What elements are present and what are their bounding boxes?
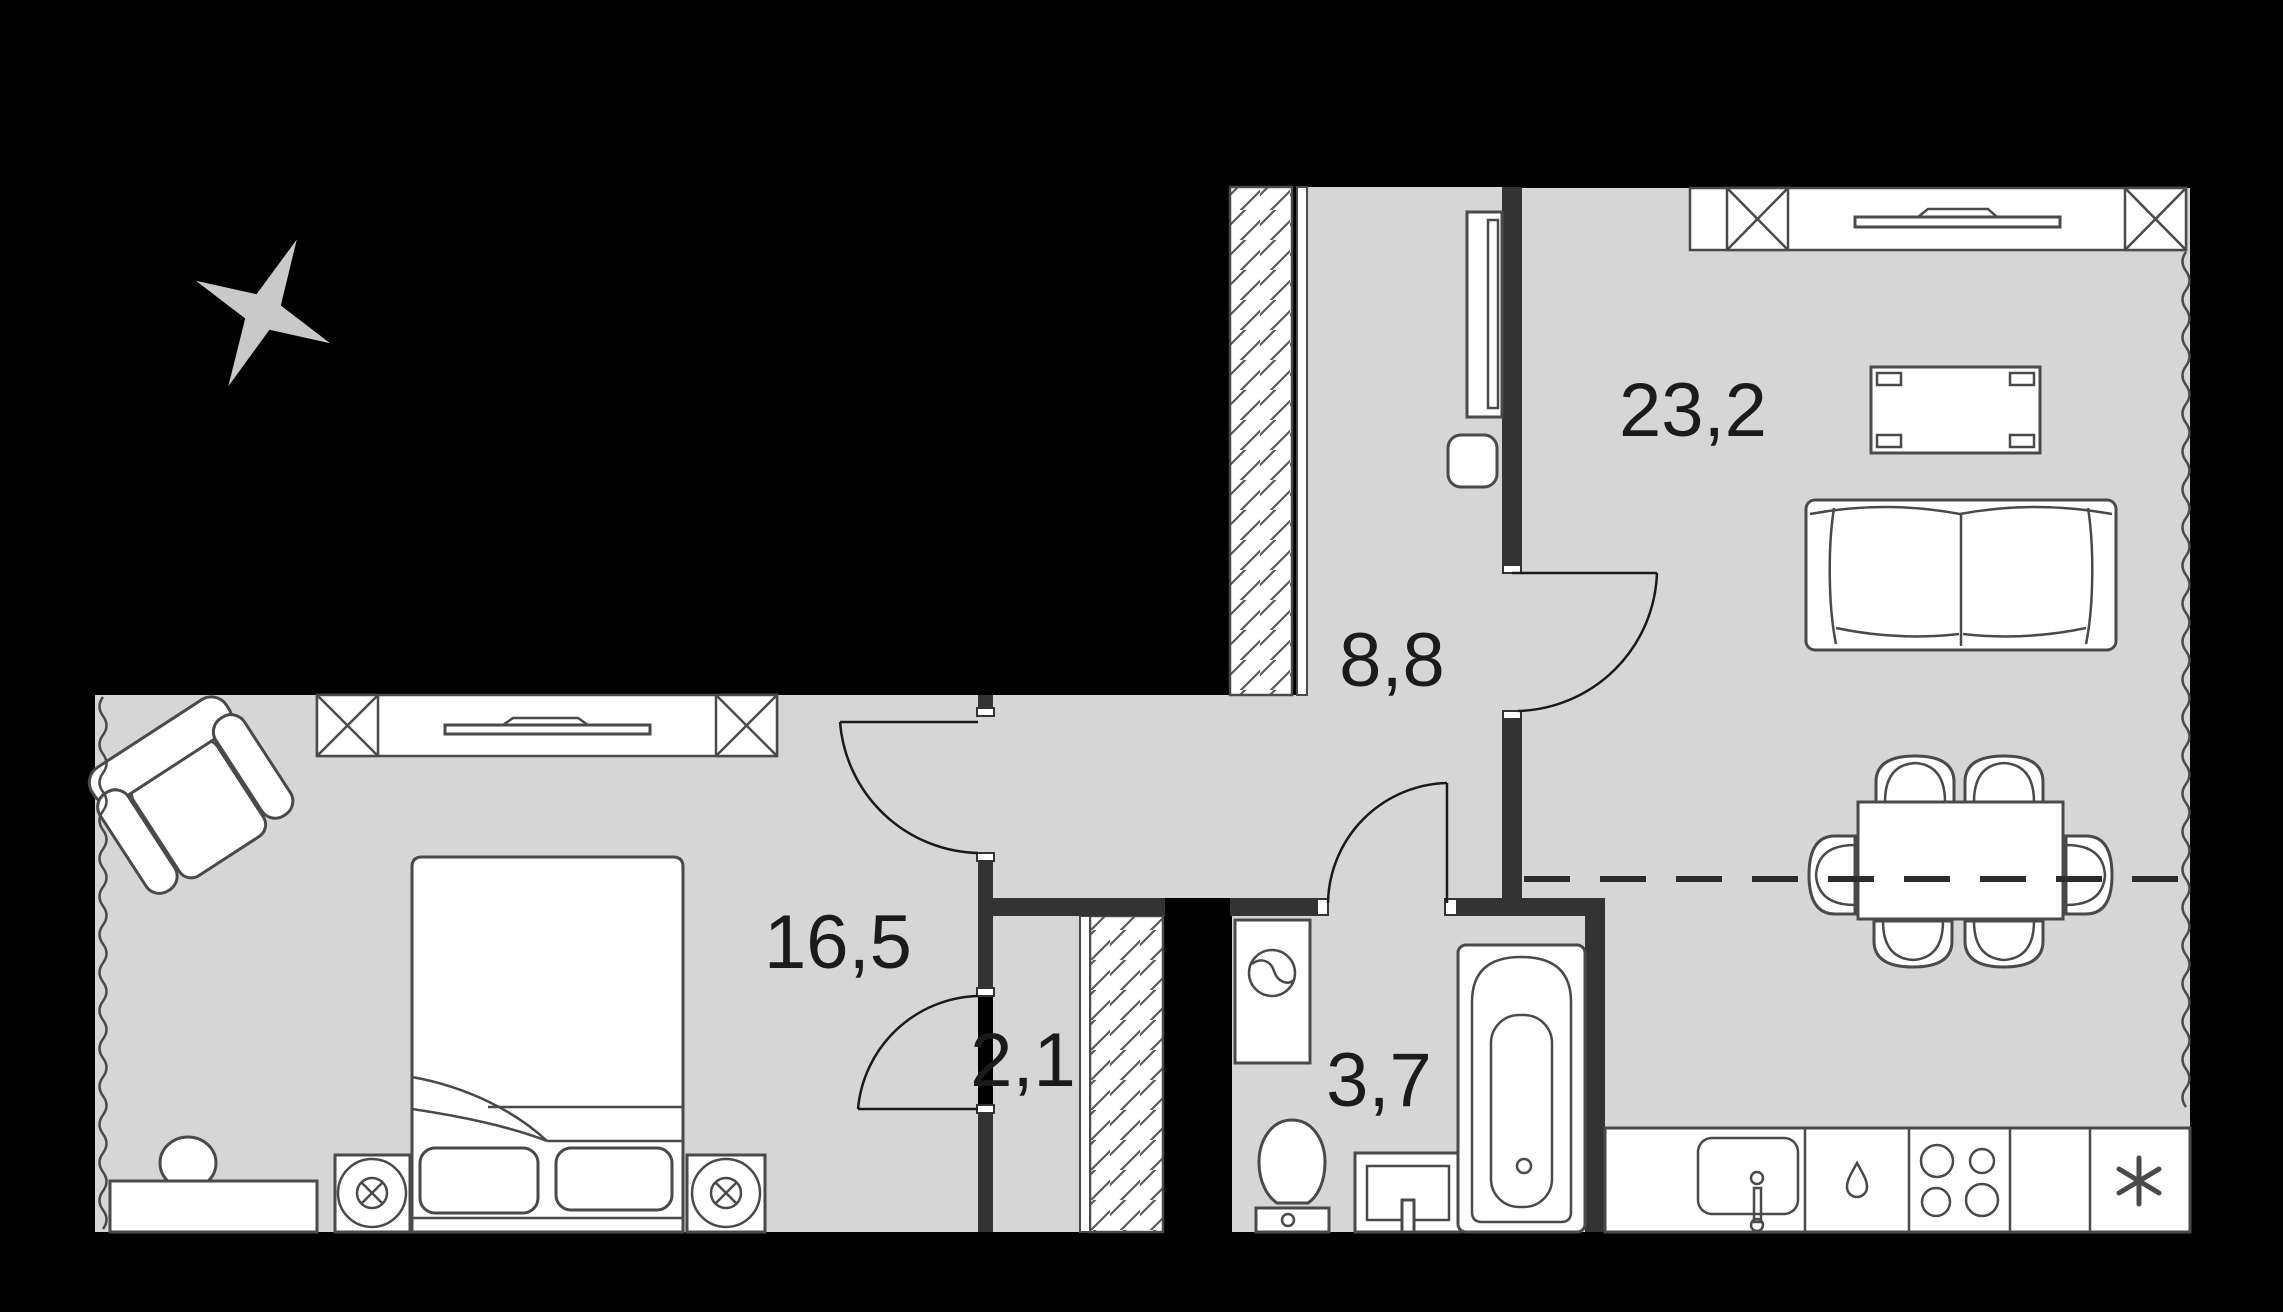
wall-bedroom-stub xyxy=(978,695,993,708)
pillow-icon xyxy=(556,1148,672,1210)
living-window xyxy=(1690,188,2186,250)
exterior-wall-inner-leaf xyxy=(1297,187,1307,695)
wall-closet-top xyxy=(993,898,1165,916)
chair-icon xyxy=(2066,836,2112,914)
wall-bedroom-lower xyxy=(978,1113,993,1232)
wall-bedroom-mid xyxy=(978,861,993,988)
washing-machine-icon xyxy=(1235,920,1310,1063)
vanity-sink-icon xyxy=(1355,1153,1460,1232)
pillow-icon xyxy=(420,1148,538,1213)
room-area-label: 23,2 xyxy=(1619,368,1767,453)
exterior-wall-hatched-icon xyxy=(1230,187,1292,695)
chair-icon xyxy=(1965,756,2043,802)
duct-wall-hatched-icon xyxy=(1090,916,1163,1232)
wall-bathroom-top-left xyxy=(1230,898,1317,916)
nightstand-right xyxy=(687,1155,765,1232)
door-jamb xyxy=(1317,899,1328,915)
chair-icon xyxy=(1965,921,2043,967)
wall-bathroom-right xyxy=(1585,916,1605,1232)
dining-table-icon xyxy=(1858,802,2063,919)
tv-icon xyxy=(445,725,650,734)
sofa-icon xyxy=(1806,500,2116,650)
bed-icon xyxy=(412,857,683,1232)
nightstand-left xyxy=(335,1155,410,1232)
toilet-icon xyxy=(1256,1120,1329,1232)
room-area-label: 3,7 xyxy=(1326,1038,1432,1123)
wall-hallway-living-lower xyxy=(1502,719,1522,900)
door-jamb xyxy=(977,1105,994,1113)
room-area-label: 8,8 xyxy=(1339,618,1445,703)
chair-icon xyxy=(1809,836,1855,914)
desk-icon xyxy=(110,1181,317,1232)
tv-icon xyxy=(1855,217,2060,227)
wall-bathroom-top-right xyxy=(1457,898,1605,916)
door-jamb xyxy=(977,708,994,716)
wall-hallway-living-upper xyxy=(1502,187,1522,565)
chair-icon xyxy=(1874,921,1952,967)
duct-wall-inner-leaf xyxy=(1080,916,1090,1232)
floorplan-canvas: 23,2 8,8 16,5 2,1 3,7 xyxy=(0,0,2283,1312)
pouf-icon xyxy=(1448,435,1497,487)
room-area-label: 16,5 xyxy=(764,900,912,985)
door-jamb xyxy=(977,988,994,996)
chair-icon xyxy=(1876,756,1954,802)
coffee-table-icon xyxy=(1871,367,2040,453)
door-jamb xyxy=(977,853,994,861)
bathtub-icon xyxy=(1458,945,1585,1232)
ventilation-shaft xyxy=(1165,898,1230,1232)
kitchen-counter xyxy=(1605,1128,2190,1232)
floorplan-svg: 23,2 8,8 16,5 2,1 3,7 xyxy=(0,0,2283,1312)
room-area-label: 2,1 xyxy=(970,1018,1076,1103)
living-kitchen-floor xyxy=(1522,188,2190,1232)
bedroom-window xyxy=(317,695,777,756)
